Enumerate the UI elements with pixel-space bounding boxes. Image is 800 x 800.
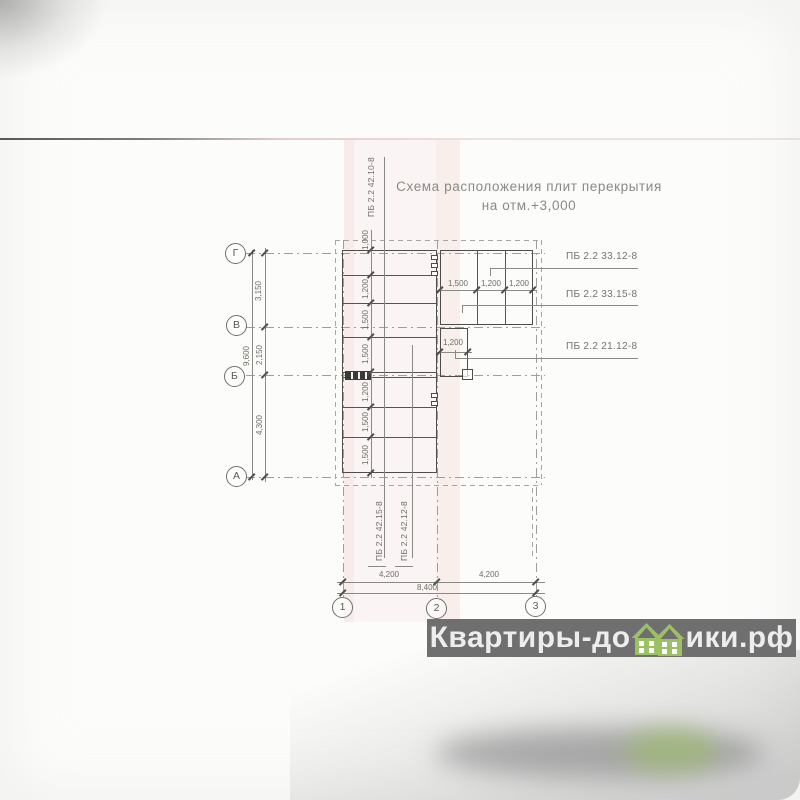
slab-mark-right-middle: ПБ 2.2 33.15-8 (566, 289, 637, 300)
axis-line-2 (437, 240, 438, 598)
label-underline (368, 566, 386, 567)
outline-left (335, 240, 336, 485)
watermark-text-suffix: ики.рф (686, 619, 794, 657)
axis-bubble-B: Б (224, 366, 245, 387)
detail-square (462, 369, 473, 380)
axis-line-3 (536, 240, 537, 596)
watermark-text-prefix: Квартиры-до (430, 619, 631, 657)
slab-mark-top: ПБ 2.2 42.10-8 (366, 152, 376, 222)
extension-line-right (532, 488, 533, 560)
outline-bottom (335, 485, 541, 486)
dim-bottom-chain: 4,200 (369, 570, 409, 580)
outline-right (541, 240, 542, 485)
anchor-square (431, 263, 438, 268)
dim-bottom-total: 8,400 (407, 583, 447, 593)
page-corner-shadow (0, 0, 230, 150)
slab-mark-bottom-left: ПБ 2.2 42.15-8 (374, 496, 384, 566)
dim-line-left-total (252, 250, 253, 480)
anchor-square (431, 271, 438, 276)
house-body (658, 639, 682, 656)
watermark-reflection-green (625, 728, 717, 772)
slab-block-left (342, 250, 437, 473)
axis-bubble-2: 2 (426, 598, 447, 619)
slab-mark-bottom-right: ПБ 2.2 42.12-8 (399, 496, 409, 566)
leader-line (412, 345, 413, 558)
leader-line (384, 157, 385, 558)
slab-joint (343, 437, 436, 438)
slab-mark-right-bottom: ПБ 2.2 21.12-8 (566, 341, 637, 352)
dim-slab-row: 1,200 (361, 274, 371, 304)
dim-slab-row: 1,500 (361, 339, 371, 369)
dim-slab-row: 1,200 (361, 377, 371, 407)
dim-left-total: 9,600 (242, 341, 252, 371)
leader-line (455, 358, 638, 359)
axis-bubble-G: Г (225, 243, 246, 264)
label-underline (395, 566, 413, 567)
leader-tick (455, 350, 456, 358)
anchor-square (431, 255, 438, 260)
dim-top-right-slab: 1,500 (444, 279, 472, 289)
slab-joint (343, 275, 436, 276)
dim-line-slab-rows (371, 230, 372, 478)
page-bottom-shadow (290, 650, 800, 800)
dim-top-right-slab: 1,200 (477, 279, 505, 289)
leader-line (490, 268, 638, 269)
axis-bubble-3: 3 (525, 596, 546, 617)
watermark-banner: Квартиры-доики.рф (427, 619, 796, 657)
green-houses-icon (632, 620, 685, 656)
dim-line-bottom-total (337, 593, 545, 594)
leader-tick (462, 305, 463, 313)
dim-slab-row: 1,500 (361, 407, 371, 437)
scanned-drawing-page: Схема расположения плит перекрытия на от… (0, 0, 800, 800)
slab-joint (343, 303, 436, 304)
slab-joint (343, 407, 436, 408)
house-roof (655, 624, 685, 639)
dim-left-chain: 2,150 (255, 340, 265, 370)
dim-top-right-slab: 1,200 (505, 279, 533, 289)
slab-mark-right-top: ПБ 2.2 33.12-8 (566, 251, 637, 262)
axis-bubble-V: В (226, 315, 247, 336)
anchor-square (431, 401, 438, 406)
axis-bubble-A: А (226, 466, 247, 487)
dim-line-left-chain (265, 248, 266, 482)
dim-slab-row: 1,500 (361, 440, 371, 470)
dim-slab-row: 1,000 (361, 225, 371, 255)
dim-slab-row: 1,500 (361, 305, 371, 335)
axis-bubble-1: 1 (332, 597, 353, 618)
drawing-title: Схема расположения плит перекрытия (379, 179, 679, 194)
house-icon (655, 624, 685, 657)
dim-left-chain: 4,300 (255, 410, 265, 440)
dim-line-top-right (437, 290, 537, 291)
anchor-square (431, 393, 438, 398)
drawing-subtitle: на отм.+3,000 (379, 198, 679, 213)
axis-line-A (246, 477, 545, 478)
slab-joint (343, 337, 436, 338)
dim-left-chain: 3,150 (254, 276, 264, 306)
leader-line (462, 305, 638, 306)
dim-small-slab: 1,200 (439, 338, 467, 348)
leader-tick (490, 268, 491, 276)
dim-bottom-chain: 4,200 (469, 570, 509, 580)
